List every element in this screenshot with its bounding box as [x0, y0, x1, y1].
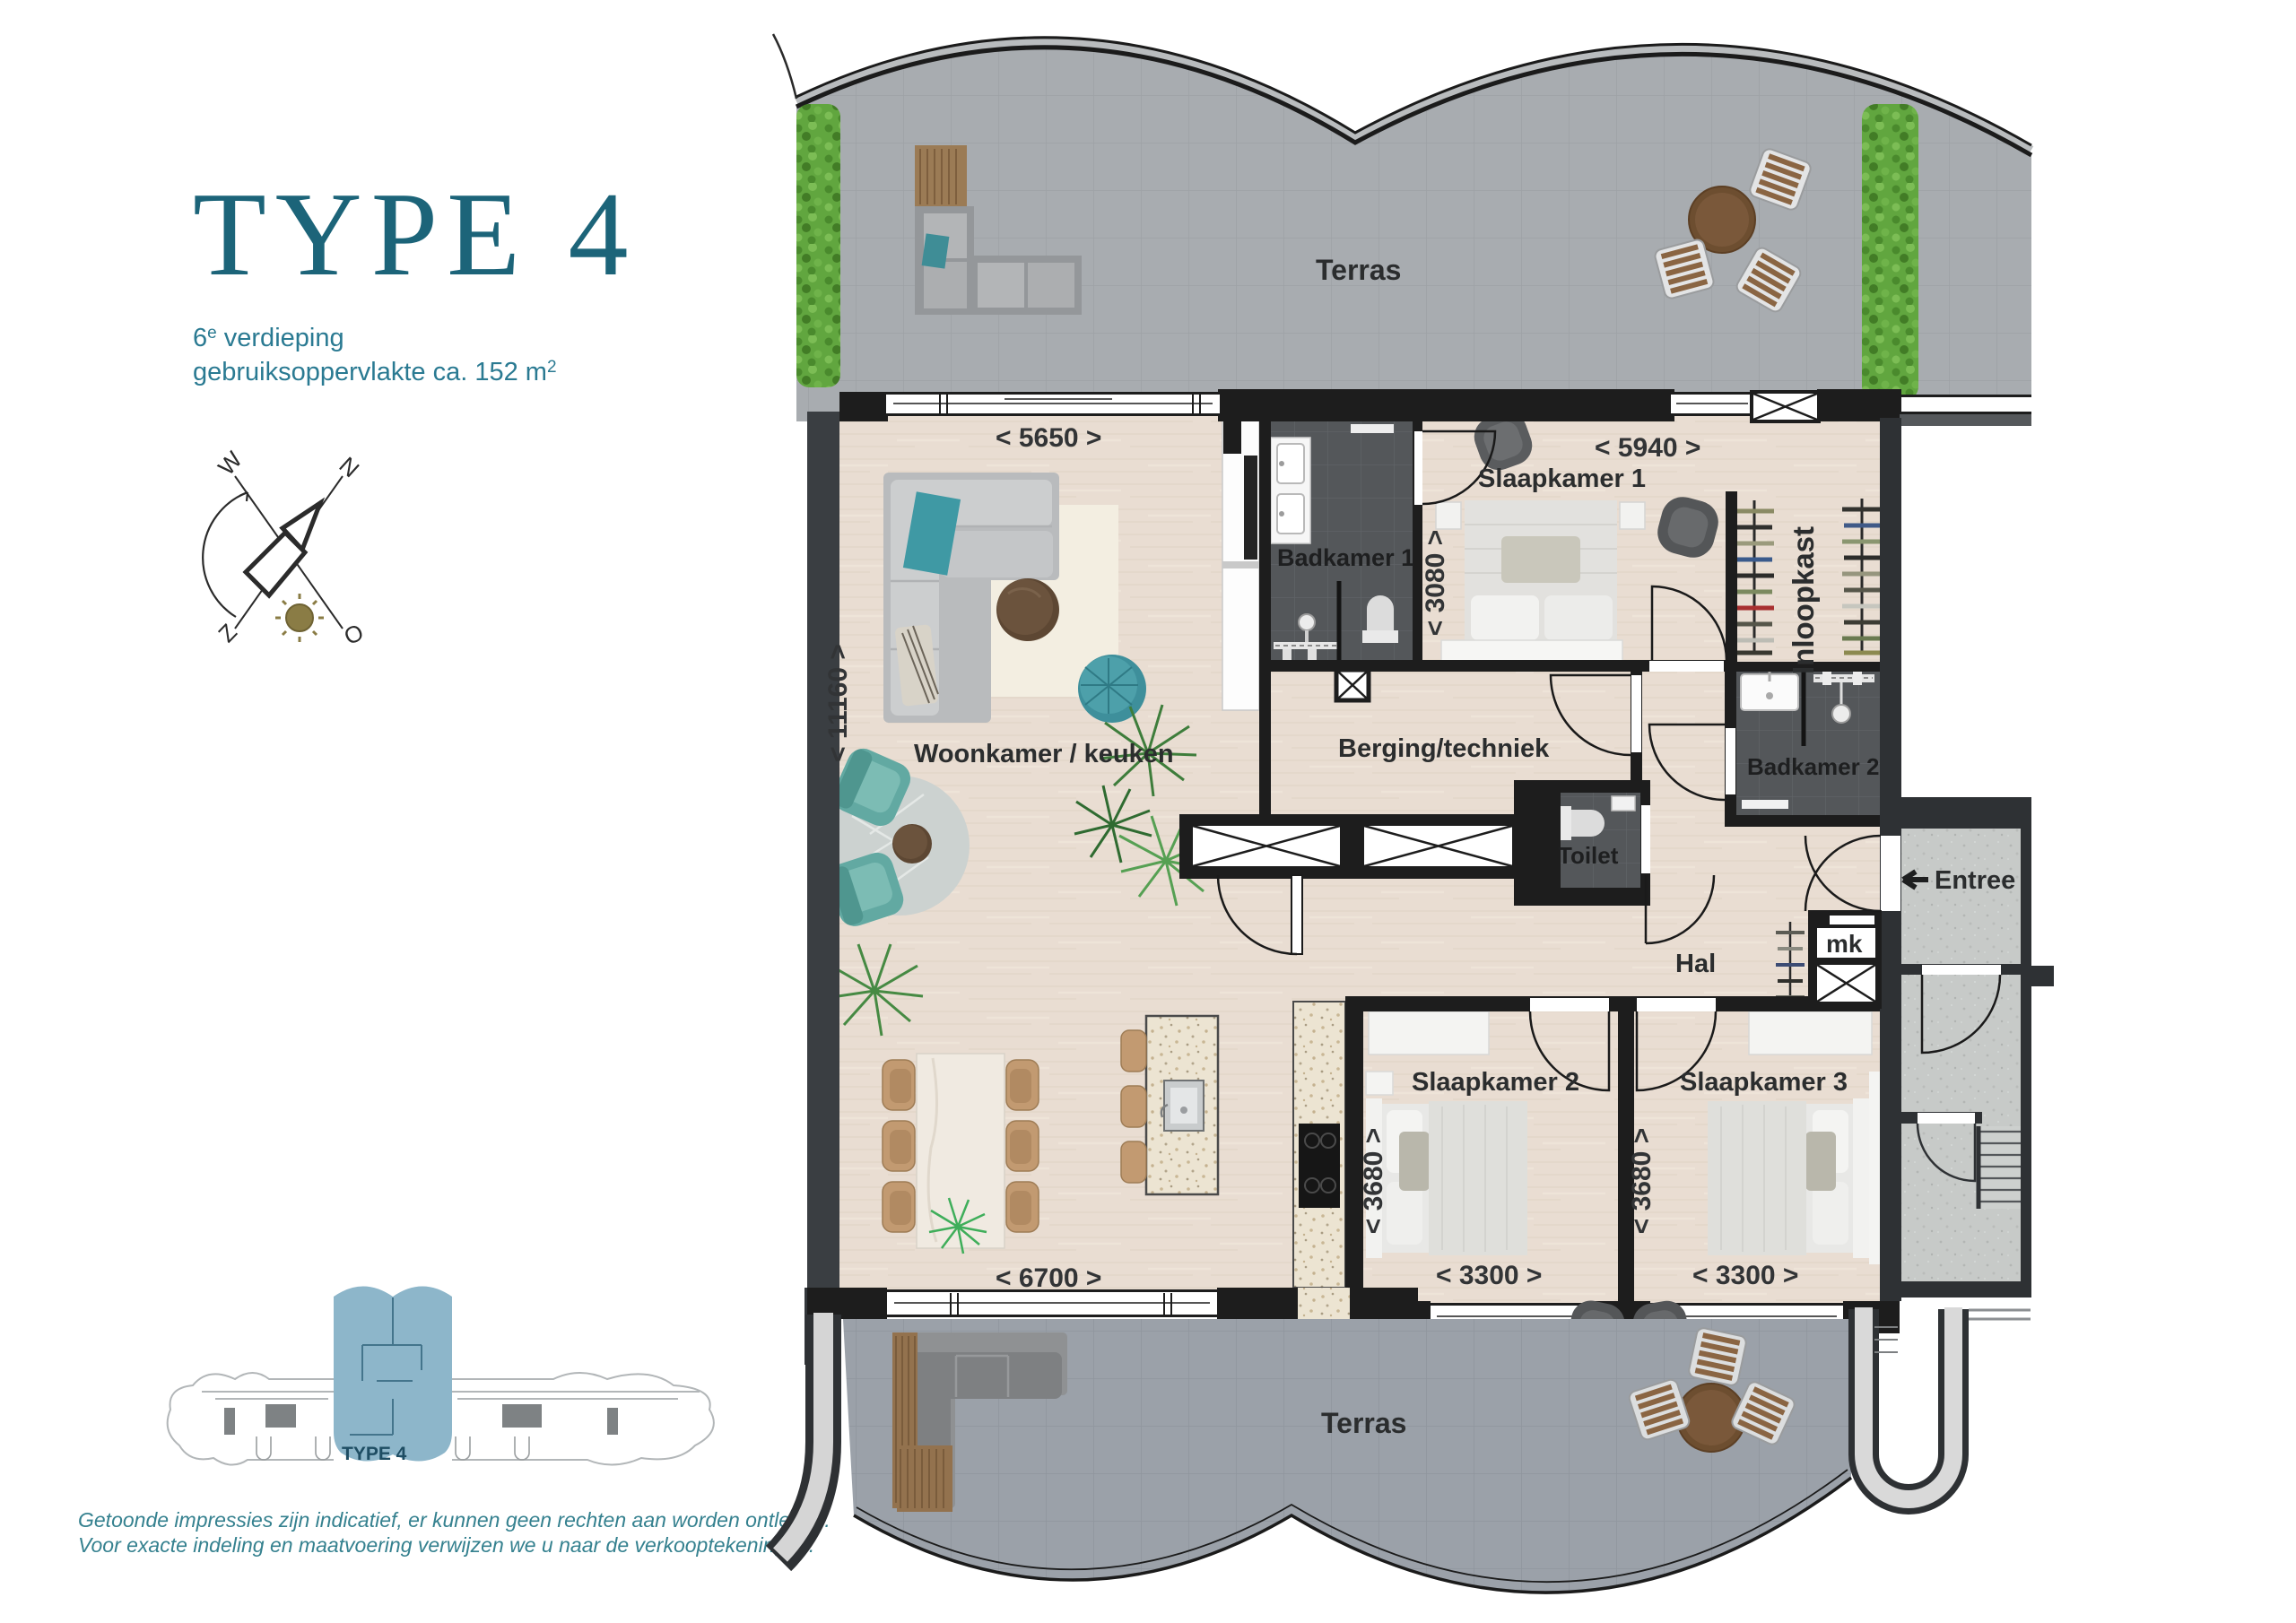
svg-text:Getoonde impressies zijn indic: Getoonde impressies zijn indicatief, er … — [78, 1508, 831, 1532]
svg-text:Slaapkamer 2: Slaapkamer 2 — [1412, 1068, 1579, 1097]
svg-text:< 6700 >: < 6700 > — [996, 1263, 1101, 1293]
svg-text:Hal: Hal — [1675, 950, 1716, 978]
svg-text:gebruiksoppervlakte ca. 152 m2: gebruiksoppervlakte ca. 152 m2 — [193, 358, 557, 386]
svg-text:< 11160 >: < 11160 > — [823, 644, 853, 762]
svg-text:Voor exacte indeling en maatvo: Voor exacte indeling en maatvoering verw… — [78, 1533, 814, 1557]
svg-text:Badkamer 2: Badkamer 2 — [1747, 753, 1879, 780]
svg-text:Terras: Terras — [1316, 254, 1401, 286]
svg-text:Berging/techniek: Berging/techniek — [1338, 734, 1550, 763]
svg-text:Slaapkamer 3: Slaapkamer 3 — [1680, 1068, 1848, 1097]
svg-text:< 3300 >: < 3300 > — [1692, 1261, 1798, 1290]
svg-text:< 3680 >: < 3680 > — [1359, 1128, 1388, 1234]
svg-text:Badkamer 1: Badkamer 1 — [1277, 544, 1414, 571]
svg-text:Toilet: Toilet — [1558, 842, 1619, 869]
svg-text:Entree: Entree — [1935, 866, 2015, 895]
svg-text:Woonkamer / keuken: Woonkamer / keuken — [914, 740, 1174, 768]
svg-text:< 3080 >: < 3080 > — [1421, 530, 1450, 636]
svg-text:< 5940 >: < 5940 > — [1595, 433, 1700, 463]
svg-text:Slaapkamer 1: Slaapkamer 1 — [1478, 464, 1646, 493]
svg-text:mk: mk — [1826, 930, 1863, 958]
svg-text:Terras: Terras — [1321, 1407, 1406, 1439]
svg-text:Inloopkast: Inloopkast — [1787, 526, 1820, 674]
svg-text:< 3300 >: < 3300 > — [1436, 1261, 1542, 1290]
svg-text:< 5650 >: < 5650 > — [996, 423, 1101, 453]
svg-text:TYPE 4: TYPE 4 — [193, 168, 638, 300]
svg-text:TYPE 4: TYPE 4 — [342, 1444, 407, 1464]
svg-text:< 3680 >: < 3680 > — [1627, 1128, 1657, 1234]
